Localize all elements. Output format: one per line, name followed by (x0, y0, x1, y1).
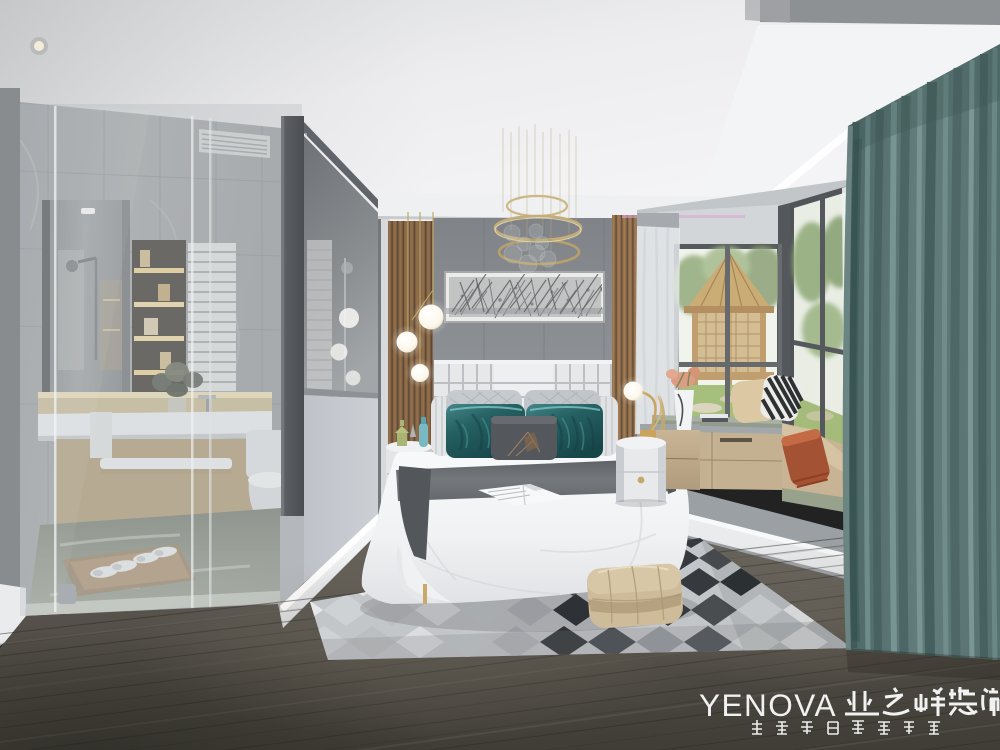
svg-text:YENOVA: YENOVA (699, 687, 837, 723)
